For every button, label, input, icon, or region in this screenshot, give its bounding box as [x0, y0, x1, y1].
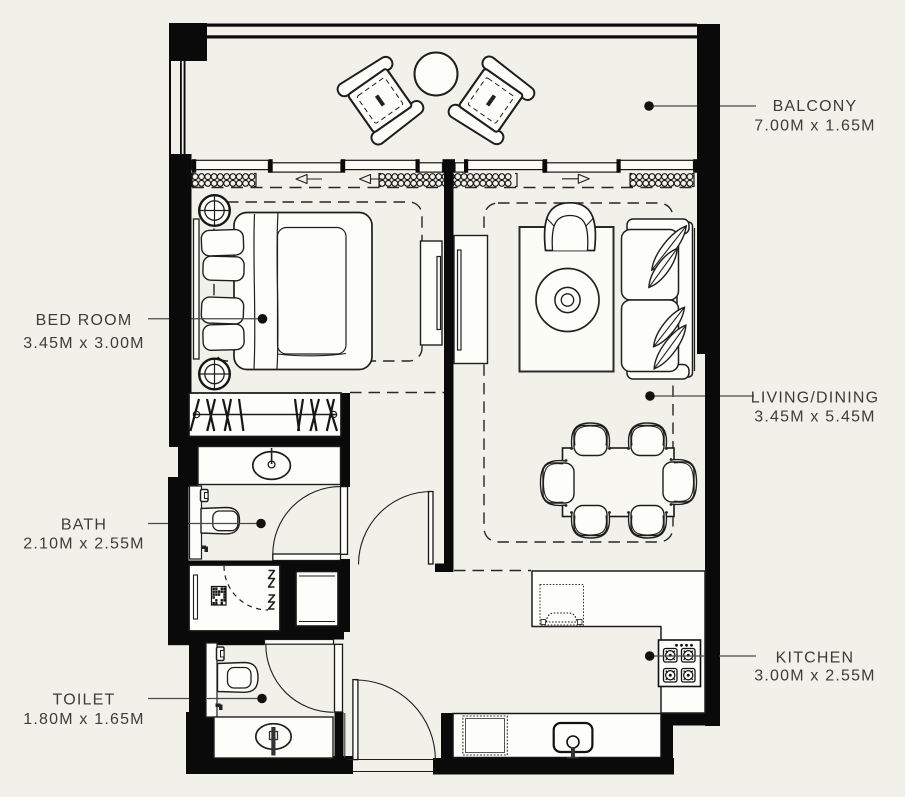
svg-text:BATH: BATH	[61, 517, 107, 534]
svg-text:2.10M x 2.55M: 2.10M x 2.55M	[23, 536, 144, 553]
svg-text:KITCHEN: KITCHEN	[776, 650, 855, 667]
svg-text:1.80M x 1.65M: 1.80M x 1.65M	[23, 711, 144, 728]
svg-text:3.45M x 5.45M: 3.45M x 5.45M	[754, 409, 875, 426]
svg-text:BED ROOM: BED ROOM	[36, 312, 133, 329]
svg-text:LIVING/DINING: LIVING/DINING	[751, 390, 880, 407]
svg-text:7.00M x 1.65M: 7.00M x 1.65M	[754, 118, 875, 135]
svg-text:3.45M x 3.00M: 3.45M x 3.00M	[23, 335, 144, 352]
svg-text:BALCONY: BALCONY	[773, 98, 858, 115]
svg-text:3.00M x 2.55M: 3.00M x 2.55M	[754, 668, 875, 685]
svg-text:TOILET: TOILET	[53, 692, 116, 709]
